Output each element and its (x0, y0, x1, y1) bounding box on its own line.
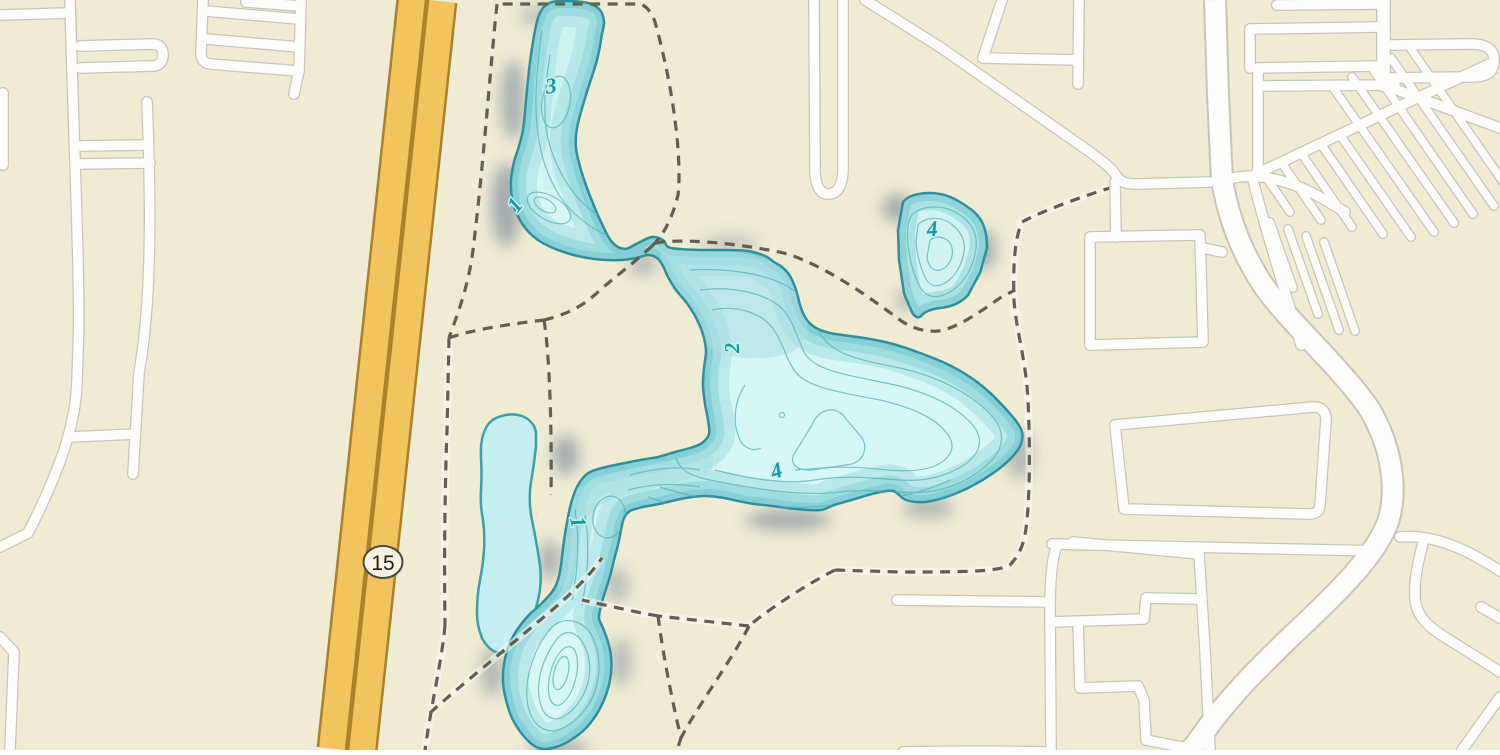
svg-text:4: 4 (924, 216, 938, 242)
svg-text:15: 15 (371, 552, 394, 575)
svg-text:2: 2 (720, 342, 745, 355)
